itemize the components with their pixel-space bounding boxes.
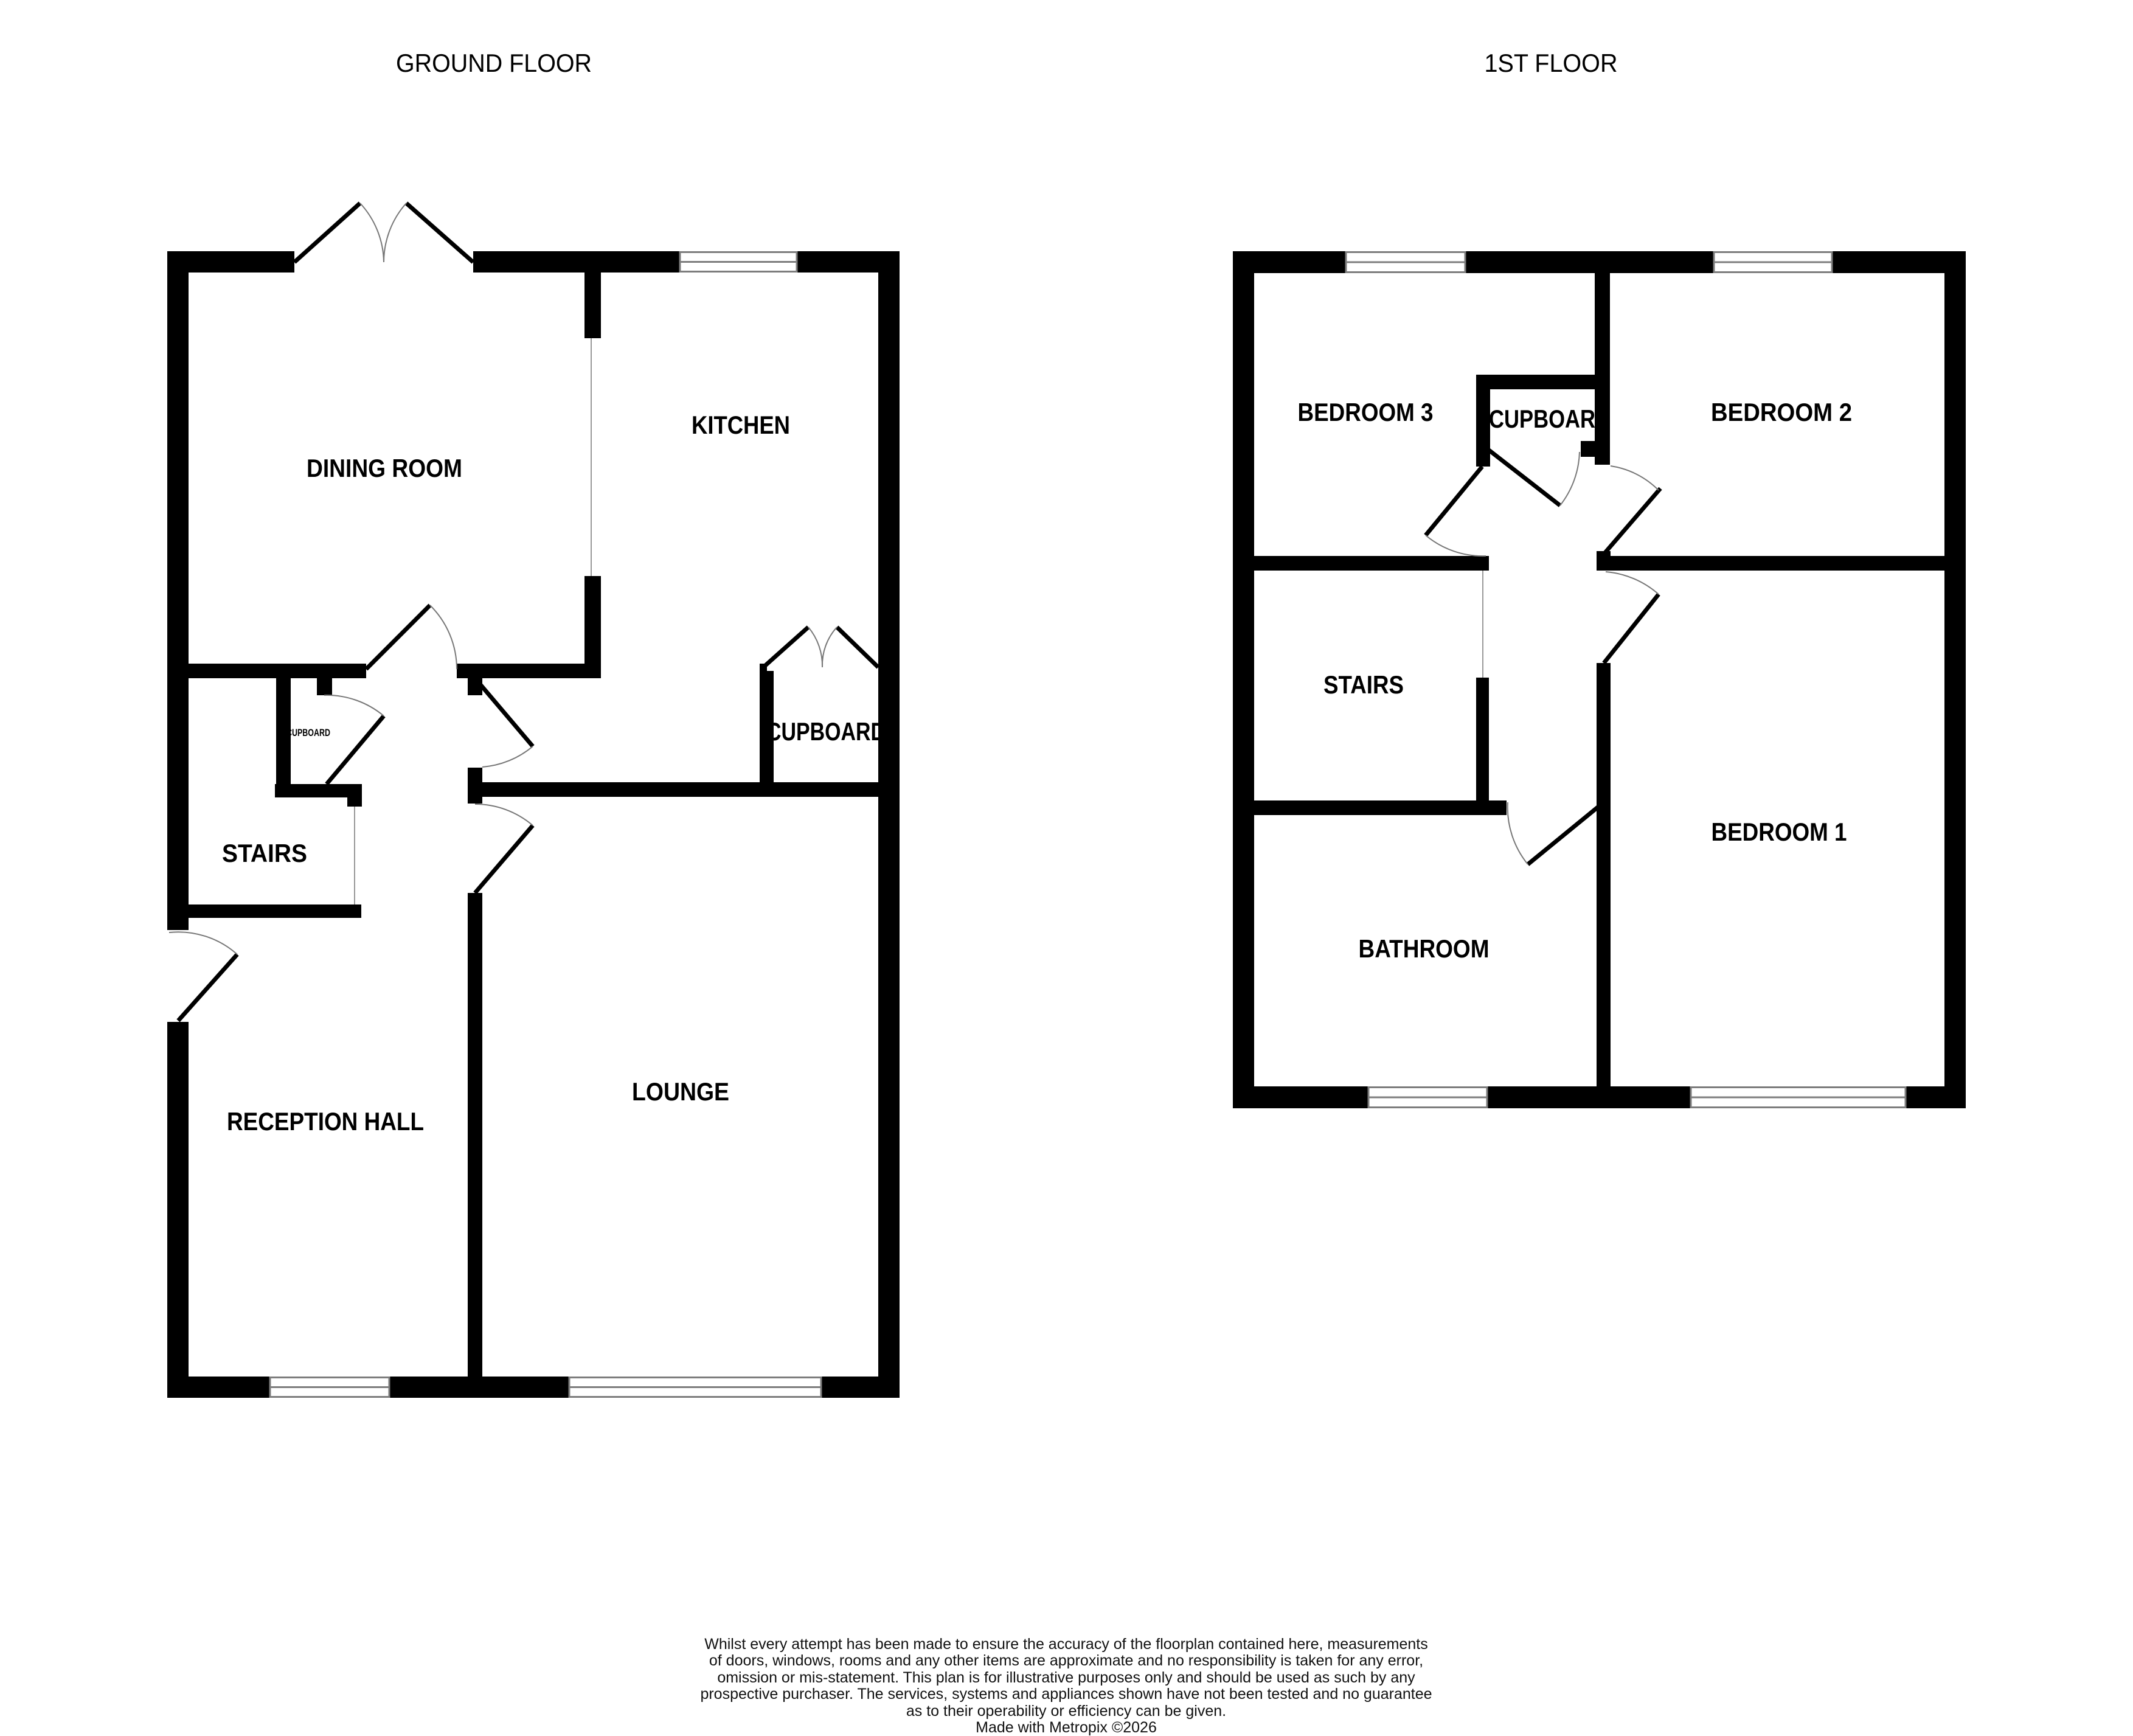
svg-text:as to their operability or eff: as to their operability or efficiency ca… bbox=[906, 1703, 1226, 1720]
svg-text:CUPBOARD: CUPBOARD bbox=[1489, 404, 1611, 433]
svg-text:omission or mis-statement. Thi: omission or mis-statement. This plan is … bbox=[717, 1669, 1415, 1686]
svg-text:BEDROOM 2: BEDROOM 2 bbox=[1711, 398, 1852, 426]
svg-text:STAIRS: STAIRS bbox=[222, 839, 307, 867]
svg-text:KITCHEN: KITCHEN bbox=[692, 411, 790, 439]
svg-text:DINING ROOM: DINING ROOM bbox=[307, 454, 462, 482]
svg-text:CUPBOARD: CUPBOARD bbox=[766, 717, 886, 746]
svg-text:Whilst every attempt has been: Whilst every attempt has been made to en… bbox=[704, 1636, 1428, 1653]
svg-text:GROUND FLOOR: GROUND FLOOR bbox=[396, 49, 592, 77]
svg-text:STAIRS: STAIRS bbox=[1323, 670, 1404, 699]
svg-text:Made with Metropix ©2026: Made with Metropix ©2026 bbox=[976, 1719, 1157, 1736]
svg-text:of doors, windows, rooms and a: of doors, windows, rooms and any other i… bbox=[709, 1652, 1423, 1669]
svg-text:BATHROOM: BATHROOM bbox=[1359, 934, 1490, 963]
svg-text:1ST FLOOR: 1ST FLOOR bbox=[1485, 49, 1618, 77]
svg-text:CUPBOARD: CUPBOARD bbox=[286, 727, 330, 738]
svg-text:prospective purchaser. The ser: prospective purchaser. The services, sys… bbox=[700, 1686, 1432, 1703]
svg-text:BEDROOM 3: BEDROOM 3 bbox=[1298, 398, 1434, 426]
svg-text:RECEPTION HALL: RECEPTION HALL bbox=[227, 1107, 424, 1136]
svg-text:BEDROOM 1: BEDROOM 1 bbox=[1712, 818, 1847, 846]
svg-text:LOUNGE: LOUNGE bbox=[632, 1077, 729, 1106]
